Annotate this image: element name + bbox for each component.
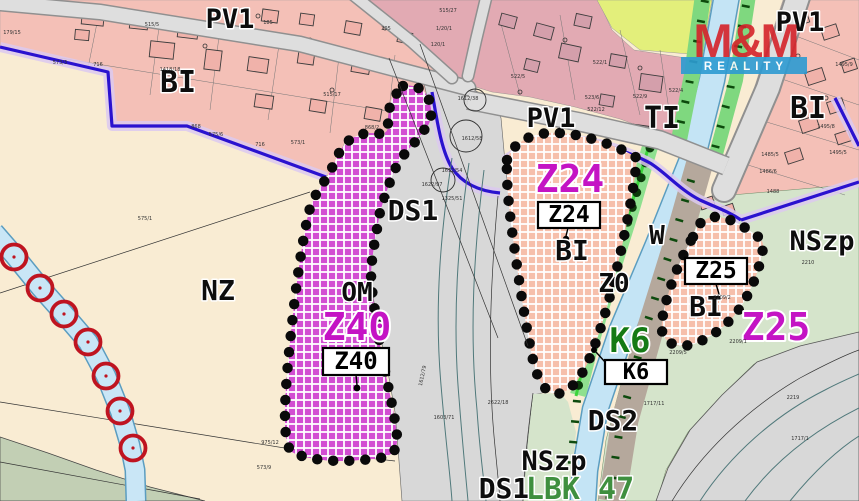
parcel-number: 1495/8 — [817, 124, 835, 130]
k6-box-text: K6 — [623, 360, 650, 385]
label-ds2: DS2 — [588, 404, 639, 437]
parcel-number: 522/1 — [593, 60, 607, 66]
parcel-number: 205 — [381, 26, 391, 32]
parcel-number: 2209/1 — [729, 339, 747, 345]
label-nszp-right: NSzp — [789, 226, 854, 257]
label-zo: Z0 — [598, 269, 629, 299]
parcel-number: 1612/58 — [462, 136, 483, 142]
z25-box-text: Z25 — [695, 258, 737, 284]
parcel-number: 868/2 — [365, 125, 379, 131]
parcel-number: 573/1 — [291, 140, 305, 146]
parcel-number: 573/9 — [257, 465, 271, 471]
parcel-number: 1495/9 — [835, 62, 853, 68]
parcel-number: 1612/54 — [442, 168, 463, 174]
parcel-number: 1612/38 — [458, 96, 479, 102]
parcel-number: 522/9 — [633, 94, 647, 100]
zoning-map: Z40 Z24 Z25 K6 PV1 BI NZ PV1 PV1 TI BI D… — [0, 0, 859, 501]
parcel-number: 1717/11 — [644, 401, 665, 407]
parcel-number: 1603/71 — [434, 415, 455, 421]
label-lbk-47: LBK 47 — [526, 472, 634, 501]
parcel-number: 1325/51 — [442, 196, 463, 202]
parcel-number: 975/12 — [261, 440, 279, 446]
parcel-number: 1485/5 — [761, 152, 779, 158]
parcel-number: 716 — [255, 142, 265, 148]
parcel-number: 515/27 — [439, 8, 457, 14]
label-k6: K6 — [610, 321, 651, 361]
parcel-number: 120/1 — [431, 42, 445, 48]
parcel-number: 1488 — [767, 189, 780, 195]
label-ti: TI — [644, 101, 680, 136]
parcel-number: 2209/5 — [669, 350, 687, 356]
parcel-number: 868 — [191, 124, 201, 130]
parcel-number: 515/17 — [323, 92, 341, 98]
label-z24-big: Z24 — [536, 157, 605, 201]
label-w: W — [649, 221, 665, 251]
parcel-number: 185 — [263, 20, 273, 26]
parcel-number: 1622/97 — [422, 182, 443, 188]
parcel-number: 716 — [93, 62, 103, 68]
parcel-number: 2209/2 — [713, 295, 731, 301]
label-pv1-mid: PV1 — [527, 103, 576, 134]
parcel-number: 575/6 — [209, 132, 223, 138]
parcel-number: 2622/18 — [488, 400, 509, 406]
zoning-map-canvas[interactable]: Z40 Z24 Z25 K6 PV1 BI NZ PV1 PV1 TI BI D… — [0, 0, 859, 501]
z40-box-text: Z40 — [334, 347, 377, 375]
label-om: OM — [341, 278, 372, 308]
parcel-number: 2219 — [787, 395, 800, 401]
parcel-number: 2210 — [802, 260, 815, 266]
parcel-number: 179/15 — [3, 30, 21, 36]
label-z25-big: Z25 — [742, 305, 811, 349]
z24-box-text: Z24 — [548, 202, 590, 228]
logo-reality-text: REALITY — [704, 61, 788, 73]
label-ds1-mid: DS1 — [388, 194, 439, 227]
parcel-number: 1717/1 — [791, 436, 809, 442]
parcel-number: 515/5 — [145, 22, 159, 28]
parcel-number: 1418/18 — [160, 67, 181, 73]
label-bi-z24: BI — [555, 234, 589, 267]
parcel-number: 1/20/1 — [436, 26, 452, 32]
label-pv1-top: PV1 — [206, 4, 255, 35]
parcel-number: 523/6 — [585, 95, 599, 101]
watermark-logo: M&M REALITY — [681, 14, 807, 74]
parcel-number: 1495/5 — [829, 150, 847, 156]
parcel-number: 575/1 — [138, 216, 152, 222]
parcel-number: 522/4 — [669, 88, 683, 94]
label-bi-right: BI — [790, 91, 826, 126]
parcel-number: 522/12 — [587, 107, 605, 113]
parcel-number: 573/3 — [53, 60, 67, 66]
label-ds1-bottom: DS1 — [479, 472, 530, 501]
label-z40-big: Z40 — [323, 305, 392, 349]
parcel-number: 522/5 — [511, 74, 525, 80]
parcel-number: 1486/6 — [759, 169, 777, 175]
label-nz: NZ — [201, 274, 235, 307]
